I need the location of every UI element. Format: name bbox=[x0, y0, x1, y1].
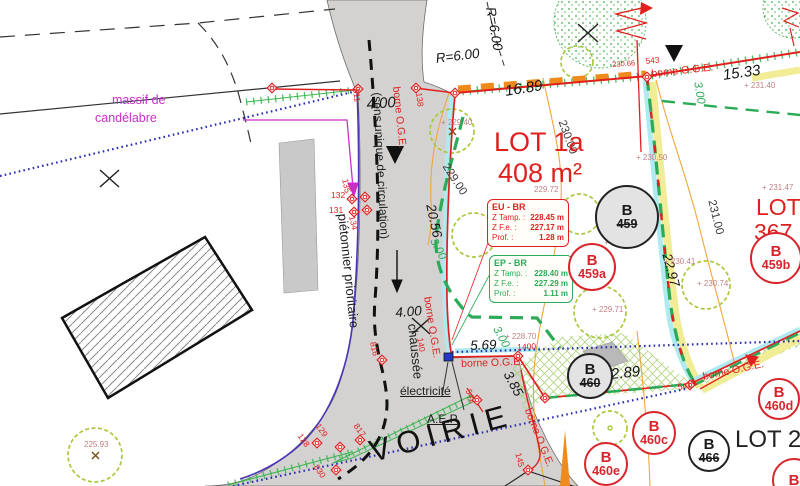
info-row-value: 1.11 m bbox=[544, 289, 568, 299]
info-box-row: Prof. :1.28 m bbox=[492, 233, 564, 243]
eu-box-title: EU - BR bbox=[492, 202, 564, 212]
radius-leader-line bbox=[487, 2, 505, 68]
orange-flow-arrow bbox=[560, 430, 570, 486]
info-row-value: 228.40 m bbox=[534, 269, 568, 279]
info-row-label: Z F.e. : bbox=[492, 223, 516, 233]
borne-ref-number: 459b bbox=[762, 259, 791, 273]
borne-ref-460d: B460d bbox=[758, 378, 800, 420]
hatched-building bbox=[62, 237, 252, 398]
info-box-row: Z Tamp. :228.40 m bbox=[494, 269, 568, 279]
borne-ref-letter: B bbox=[771, 244, 782, 259]
info-box-row: Z F.e. :227.29 m bbox=[494, 279, 568, 289]
borne-ref-letter: B bbox=[774, 385, 785, 400]
ep-leader-line bbox=[452, 272, 491, 345]
info-box-row: Z F.e. :227.17 m bbox=[492, 223, 564, 233]
gray-building-1 bbox=[279, 139, 318, 293]
site-plan-drawing bbox=[0, 0, 800, 486]
boundary-triangle-marker bbox=[665, 45, 683, 62]
borne-ref-number: 460d bbox=[765, 400, 794, 414]
borne-ref-letter: B bbox=[789, 473, 800, 486]
borne-ref-459a: B459a bbox=[568, 243, 616, 291]
eu-manhole-info-box: EU - BR Z Tamp. :228.45 mZ F.e. :227.17 … bbox=[487, 199, 569, 247]
borne-ref-number: 460 bbox=[580, 377, 601, 391]
ep-box-title: EP - BR bbox=[494, 258, 568, 268]
borne-ref-number: 460c bbox=[640, 434, 668, 448]
existing-road-lines bbox=[0, 9, 340, 148]
info-row-label: Z Tamp. : bbox=[494, 269, 527, 279]
info-row-value: 227.17 m bbox=[530, 223, 564, 233]
site-plan: 4.0016.8915.3320.564.005.693.8512.8922.9… bbox=[0, 0, 800, 486]
borne-ref-459b: B459b bbox=[750, 232, 800, 284]
info-row-value: 227.29 m bbox=[534, 279, 568, 289]
borne-ref-460e: B460e bbox=[584, 442, 628, 486]
borne-ref-letter: B bbox=[585, 362, 596, 377]
info-box-row: Z Tamp. :228.45 m bbox=[492, 213, 564, 223]
borne-ref-460c: B460c bbox=[632, 411, 676, 455]
info-row-label: Z F.e. : bbox=[494, 279, 518, 289]
borne-ref-number: 459a bbox=[578, 268, 606, 282]
ep-manhole-info-box: EP - BR Z Tamp. :228.40 mZ F.e. :227.29 … bbox=[489, 255, 573, 303]
borne-ref-number: 460e bbox=[592, 465, 620, 479]
ep-box-rows: Z Tamp. :228.40 mZ F.e. :227.29 mProf. :… bbox=[494, 269, 568, 299]
borne-ref-number: 459 bbox=[617, 218, 638, 232]
info-row-label: Prof. : bbox=[494, 289, 515, 299]
borne-ref-459: B459 bbox=[595, 185, 659, 249]
borne-ref-letter: B bbox=[587, 253, 598, 268]
info-box-row: Prof. :1.11 m bbox=[494, 289, 568, 299]
info-row-value: 228.45 m bbox=[530, 213, 564, 223]
orange-dashed-boundary bbox=[458, 74, 646, 89]
borne-ref-letter: B bbox=[601, 450, 612, 465]
info-row-value: 1.28 m bbox=[539, 233, 564, 243]
borne-ref-letter: B bbox=[622, 203, 633, 218]
borne-ref-number: 466 bbox=[699, 452, 720, 466]
borne-ref-466: B466 bbox=[688, 430, 730, 472]
eu-box-rows: Z Tamp. :228.45 mZ F.e. :227.17 mProf. :… bbox=[492, 213, 564, 243]
electric-connection-box bbox=[444, 353, 453, 361]
info-row-label: Z Tamp. : bbox=[492, 213, 525, 223]
borne-ref-letter: B bbox=[704, 437, 715, 452]
info-row-label: Prof. : bbox=[492, 233, 513, 243]
borne-ref-letter: B bbox=[649, 419, 660, 434]
borne-ref-460: B460 bbox=[567, 353, 613, 399]
